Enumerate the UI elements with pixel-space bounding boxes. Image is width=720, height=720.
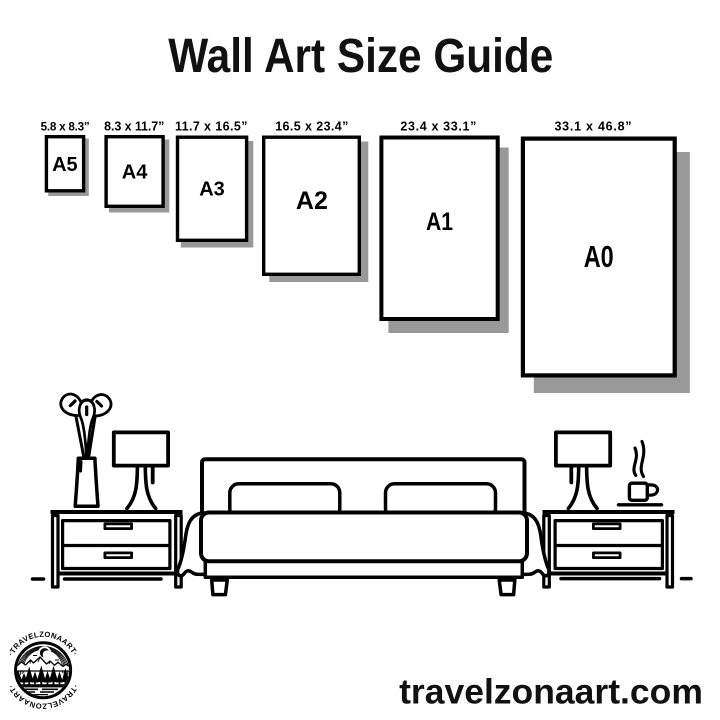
svg-text:travelzonaart.com: travelzonaart.com	[399, 672, 703, 712]
svg-text:A4: A4	[122, 161, 148, 183]
svg-text:A1: A1	[426, 208, 453, 236]
svg-text:A2: A2	[296, 187, 328, 215]
svg-text:11.7 x 16.5”: 11.7 x 16.5”	[175, 120, 248, 134]
svg-text:5.8 x 8.3”: 5.8 x 8.3”	[41, 121, 90, 134]
svg-text:33.1 x 46.8”: 33.1 x 46.8”	[554, 120, 632, 134]
svg-text:8.3 x 11.7”: 8.3 x 11.7”	[104, 120, 164, 134]
svg-text:A3: A3	[199, 179, 225, 201]
svg-text:A5: A5	[52, 154, 78, 176]
svg-text:16.5 x 23.4”: 16.5 x 23.4”	[275, 120, 349, 134]
svg-text:23.4 x 33.1”: 23.4 x 33.1”	[400, 120, 477, 134]
svg-text:A0: A0	[584, 239, 614, 274]
svg-text:Wall Art Size Guide: Wall Art Size Guide	[168, 29, 553, 83]
